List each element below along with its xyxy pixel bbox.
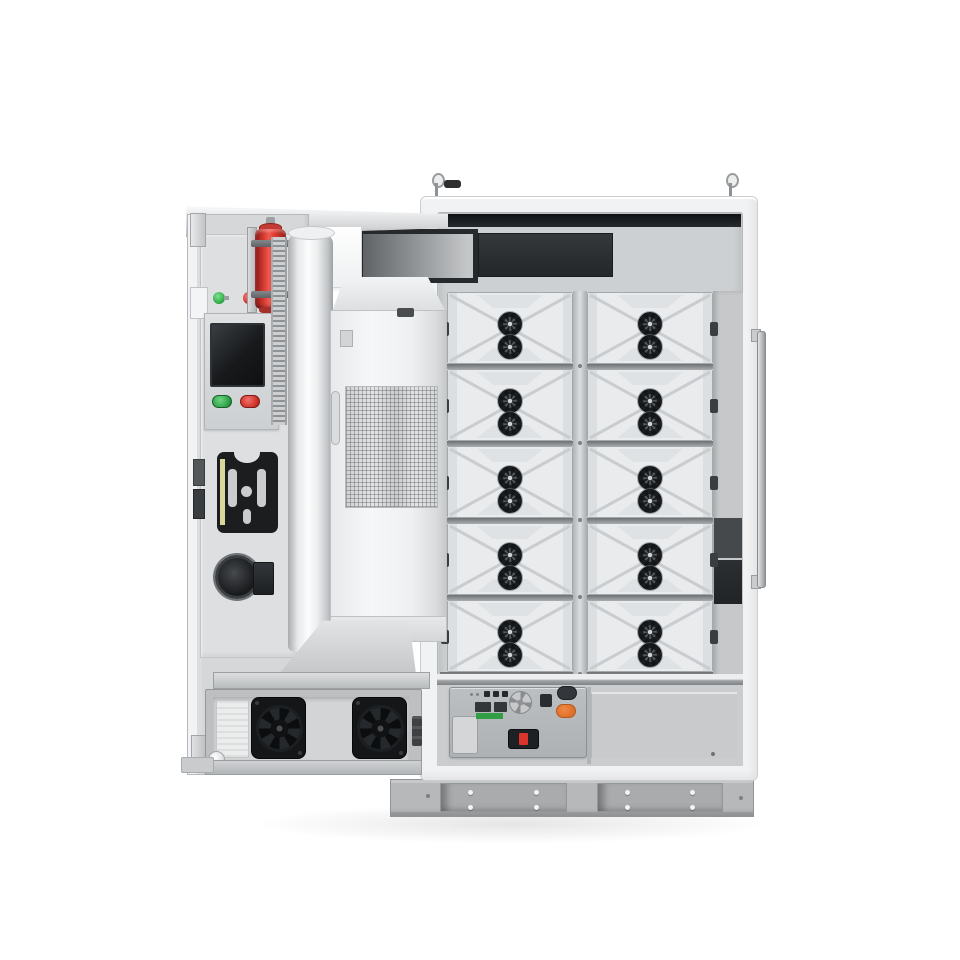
fan-blades xyxy=(256,705,303,752)
bess-cabinet-render xyxy=(0,0,960,960)
door-fans-layer xyxy=(0,0,960,960)
door-exhaust-fan xyxy=(352,697,407,759)
fan-blades xyxy=(357,705,404,752)
door-exhaust-fan xyxy=(251,697,306,759)
door-bottom-tab xyxy=(181,757,214,773)
fan-box-bottom-rail xyxy=(205,760,422,775)
fan-box-connector xyxy=(412,716,422,746)
